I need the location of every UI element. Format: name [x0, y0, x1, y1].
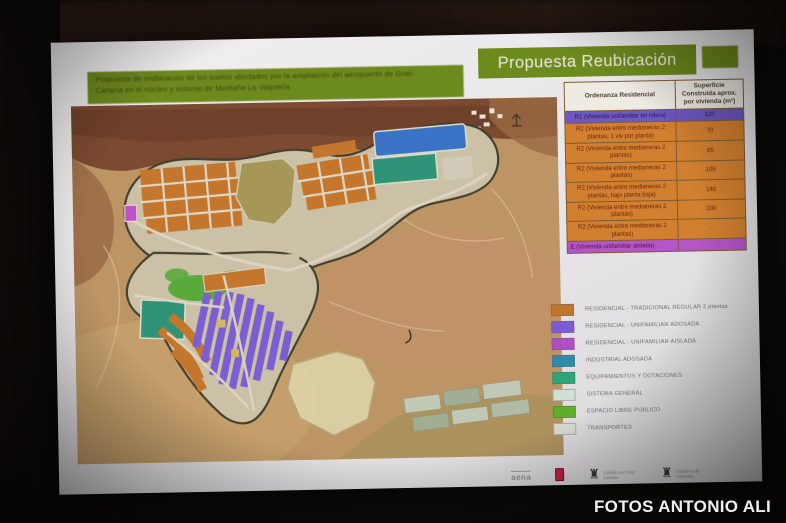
- superficie-value: 140: [677, 179, 745, 200]
- slide-banner: Propuesta de reubicación de los suelos a…: [87, 65, 464, 104]
- photographer-watermark: FOTOS ANTONIO ALI: [594, 497, 771, 517]
- table-row: E (Vivienda unifamiliar aislada): [567, 238, 746, 254]
- legend-swatch: [553, 405, 576, 417]
- map-svg: [71, 97, 564, 464]
- crest-icon: ♜: [661, 466, 673, 479]
- ordenanza-table-body: R1 (Vivienda unifamiliar en hilera)120R2…: [565, 108, 747, 254]
- projection-photo: Propuesta de reubicación de los suelos a…: [0, 0, 786, 523]
- legend-label: EQUIPAMIENTOS Y DOTACIONES: [586, 372, 682, 380]
- map-legend: RESIDENCIAL - TRADICIONAL REGULAR 2 plan…: [551, 297, 759, 437]
- legend-swatch: [551, 320, 574, 332]
- legend-label: RESIDENCIAL - UNIFAMILIAR AISLADA: [586, 338, 696, 346]
- presentation-slide: Propuesta de reubicación de los suelos a…: [51, 29, 763, 494]
- footer-logos: aena♜Cabildo de Gran Canaria♜Gobierno de…: [511, 447, 762, 482]
- table-header-superficie: Superficie Construida aprox. por viviend…: [675, 79, 744, 109]
- legend-label: TRANSPORTES: [587, 424, 632, 431]
- equipamiento-block-north: [372, 153, 438, 185]
- municipal-shield-logo: [555, 468, 564, 481]
- legend-label: RESIDENCIAL - TRADICIONAL REGULAR 2 plan…: [585, 303, 728, 312]
- shield-icon: [555, 468, 564, 481]
- ordenanza-label: R2 (Vivienda entre medianeras 2 plantas): [566, 161, 677, 183]
- superficie-value: 70: [676, 120, 744, 141]
- residential-aislada-parcel: [125, 205, 137, 221]
- superficie-value: 105: [677, 160, 745, 181]
- institutional-crest-logo: ♜Gobierno de Canarias: [661, 465, 710, 479]
- crest-caption: Cabildo de Gran Canaria: [603, 469, 637, 480]
- legend-swatch: [551, 337, 574, 349]
- aena-wordmark: aena: [511, 471, 531, 482]
- ordenanza-label: R2 (Vivienda entre medianeras 2 plantas): [567, 220, 678, 242]
- legend-label: ESPACIO LIBRE PÚBLICO: [587, 407, 661, 414]
- ordenanza-table: Ordenanza Residencial Superficie Constru…: [564, 78, 747, 254]
- legend-label: INDUSTRIAL ADOSADA: [586, 356, 652, 363]
- legend-swatch: [552, 354, 575, 366]
- institutional-crest-logo: ♜Cabildo de Gran Canaria: [588, 467, 637, 481]
- legend-label: RESIDENCIAL - UNIFAMILIAR ADOSADA: [585, 321, 699, 329]
- legend-swatch: [552, 371, 575, 383]
- aena-logo: aena: [511, 471, 531, 482]
- superficie-value: 85: [676, 140, 744, 161]
- ordenanza-label: R2 (Vivienda entre medianeras 2 plantas,…: [566, 180, 677, 202]
- legend-item: TRANSPORTES: [553, 416, 758, 437]
- legend-swatch: [552, 388, 575, 400]
- crest-icon: ♜: [588, 467, 600, 480]
- legend-swatch: [553, 422, 576, 434]
- ordenanza-label: R2 (Vivienda entre medianeras 2 plantas): [565, 141, 676, 163]
- table-header-ordenanza: Ordenanza Residencial: [564, 80, 676, 111]
- slide-title: Propuesta Reubicación: [478, 44, 697, 78]
- crest-caption: Gobierno de Canarias: [676, 468, 710, 479]
- superficie-value: -: [678, 218, 746, 239]
- ordenanza-label: R2 (Vivienda entre medianeras 2 plantas,…: [565, 122, 676, 144]
- residential-grid-west: [138, 161, 247, 234]
- ordenanza-label: R2 (Vivienda entre medianeras 2 plantas): [566, 200, 677, 222]
- superficie-value: [678, 238, 746, 252]
- ordenanza-label: E (Vivienda unifamiliar aislada): [567, 239, 678, 253]
- legend-label: SISTEMA GENERAL: [587, 390, 644, 397]
- aerial-plan-map: [71, 97, 564, 464]
- superficie-value: 200: [677, 199, 745, 220]
- slide-title-tail: [702, 46, 738, 69]
- legend-swatch: [551, 303, 574, 315]
